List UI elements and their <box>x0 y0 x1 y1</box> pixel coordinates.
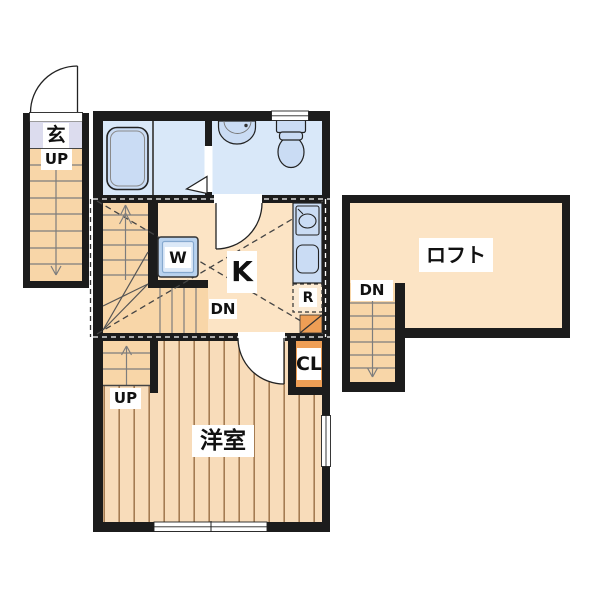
western-room-label: 洋室 <box>192 425 254 457</box>
window-bottom <box>154 521 267 532</box>
room-up-label: UP <box>110 388 141 409</box>
toilet <box>277 120 306 168</box>
kitchen-label: K <box>227 251 257 293</box>
closet-label: CL <box>297 348 321 380</box>
entrance-door-arc <box>31 66 78 113</box>
kitchen-dn-label: DN <box>209 299 237 319</box>
bathtub <box>107 128 148 190</box>
entrance-up-label: UP <box>41 149 72 170</box>
loft-ladder-block <box>300 315 322 333</box>
washer-label: W <box>165 247 191 268</box>
loft-dn-label: DN <box>351 280 393 301</box>
window-right <box>322 416 331 467</box>
floor-plan: 玄 UP K DN W R CL 洋室 UP ロフト DN <box>0 0 600 600</box>
entrance-label: 玄 <box>43 123 69 148</box>
kitchen-counter <box>293 203 322 283</box>
loft-label: ロフト <box>419 238 493 272</box>
refrigerator-label: R <box>299 288 317 307</box>
entrance-block <box>23 66 89 288</box>
window-top <box>272 111 309 121</box>
